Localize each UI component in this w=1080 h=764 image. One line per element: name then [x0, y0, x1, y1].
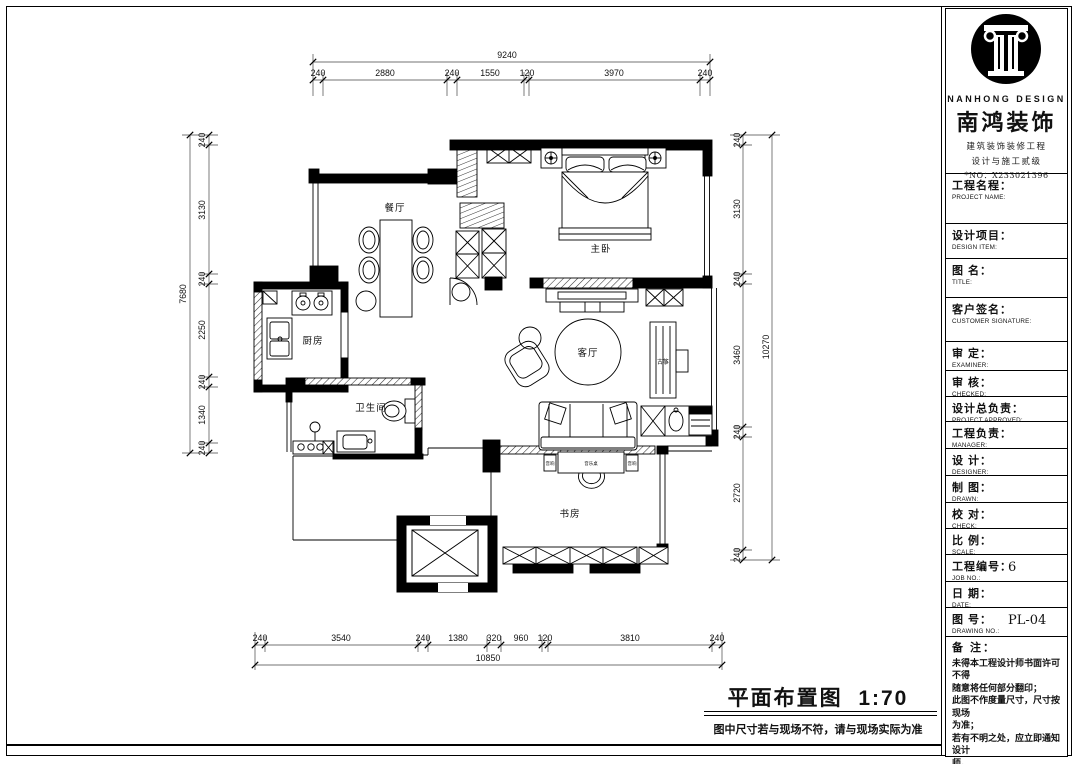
dim-right-seg: 2720	[732, 483, 742, 503]
entry-stool	[452, 283, 470, 301]
speaker-right-label: 音响	[628, 460, 637, 467]
notes-title: 备 注：	[952, 642, 1062, 655]
brand-line1: 建筑装饰装修工程	[946, 140, 1067, 152]
brand-name-en: NANHONG DESIGN	[946, 94, 1067, 104]
dim-bottom-seg: 240	[710, 633, 725, 643]
dim-left-seg: 240	[197, 441, 207, 456]
field-label-en: JOB NO.:	[952, 575, 1067, 582]
field-project-name: 工程名程： PROJECT NAME:	[946, 174, 1067, 224]
dim-bottom-seg: 320	[487, 633, 502, 643]
dim-bottom-seg: 960	[514, 633, 529, 643]
dim-top-seg: 120	[520, 68, 535, 78]
drawing-title-text: 平面布置图	[728, 687, 843, 710]
field-label-cn: 审 核：	[952, 374, 1067, 390]
dim-top-seg: 2880	[375, 68, 395, 78]
dim-left-seg: 1340	[197, 405, 207, 425]
brand-name-cn: 南鸿装饰	[946, 105, 1067, 137]
dim-bottom-seg: 3540	[331, 633, 351, 643]
room-label-bathroom: 卫生间	[355, 402, 387, 414]
drawing-scale: 1:70	[858, 687, 908, 710]
note-line: 为准；	[952, 719, 1062, 732]
field-label-en: TITLE:	[952, 279, 1067, 286]
field-project-approved: 设计总负责： PROJECT APPROVED:	[946, 397, 1067, 422]
room-living	[501, 289, 712, 450]
field-examiner: 审 定： EXAMINER:	[946, 342, 1067, 371]
field-label-en: MANAGER:	[952, 442, 1067, 449]
field-label-en: CUSTOMER SIGNATURE:	[952, 318, 1067, 325]
note-line: 此图不作度量尺寸，尺寸按现场	[952, 694, 1062, 719]
company-logo-icon	[946, 9, 1067, 87]
logo-area: NANHONG DESIGN 南鸿装饰 建筑装饰装修工程 设计与施工贰级 *NO…	[946, 9, 1067, 174]
notes-section: 备 注： 未得本工程设计师书面许可不得 随意将任何部分翻印； 此图不作度量尺寸，…	[946, 637, 1067, 764]
field-label-en: DESIGN ITEM:	[952, 244, 1067, 251]
note-line: 若有不明之处，应立即通知设计	[952, 732, 1062, 757]
dim-top-seg: 240	[311, 68, 326, 78]
field-label-cn: 设计总负责：	[952, 400, 1067, 416]
note-line: 师。	[952, 757, 1062, 764]
dim-right-seg: 3130	[732, 199, 742, 219]
dim-left-seg: 2250	[197, 320, 207, 340]
room-dining	[356, 220, 433, 317]
dim-bottom-seg: 120	[538, 633, 553, 643]
note-line: 未得本工程设计师书面许可不得	[952, 657, 1062, 682]
guzheng-label: 古筝	[657, 358, 669, 366]
floor-plan-drawing: 9240 240 2880 240 1550 120 3970 240 7680…	[0, 0, 941, 764]
dim-right-seg: 240	[732, 133, 742, 148]
dim-top-seg: 1550	[480, 68, 500, 78]
dim-top-total: 9240	[497, 50, 517, 60]
brand-line2: 设计与施工贰级	[946, 155, 1067, 167]
field-manager: 工程负责： MANAGER:	[946, 422, 1067, 449]
music-desk-label: 音乐桌	[584, 460, 598, 467]
dim-left-seg: 3130	[197, 200, 207, 220]
field-label-cn: 审 定：	[952, 345, 1067, 361]
room-label-kitchen: 厨房	[302, 335, 323, 347]
dim-right-seg: 240	[732, 425, 742, 440]
room-label-living: 客厅	[577, 347, 598, 359]
room-label-master-bedroom: 主卧	[590, 243, 611, 255]
dim-top-seg: 240	[698, 68, 713, 78]
field-label-cn: 工程名程：	[952, 177, 1067, 193]
field-drawing-no: 图 号： DRAWING NO.: PL-04	[946, 608, 1067, 637]
speaker-left-label: 音响	[546, 460, 555, 467]
title-underline	[704, 711, 937, 716]
dim-bottom-total: 10850	[476, 653, 501, 663]
dimension-labels-top: 9240 240 2880 240 1550 120 3970 240	[311, 50, 713, 78]
room-label-study: 书房	[559, 508, 580, 520]
dim-bottom-seg: 1380	[448, 633, 468, 643]
field-label-en: DRAWN:	[952, 496, 1067, 503]
dim-right-seg: 3460	[732, 345, 742, 365]
note-line: 随意将任何部分翻印；	[952, 682, 1062, 695]
blueprint-page: 9240 240 2880 240 1550 120 3970 240 7680…	[0, 0, 1080, 764]
dimension-labels-right: 10270 240 3130 240 3460 240 2720 240	[732, 133, 771, 563]
dimensions-top	[310, 54, 713, 96]
field-label-cn: 设 计：	[952, 452, 1067, 468]
dim-left-seg: 240	[197, 375, 207, 390]
drawing-title: 平面布置图 1:70	[698, 682, 938, 712]
field-customer-signature: 客户签名： CUSTOMER SIGNATURE:	[946, 298, 1067, 342]
title-block: NANHONG DESIGN 南鸿装饰 建筑装饰装修工程 设计与施工贰级 *NO…	[945, 8, 1068, 757]
field-label-cn: 比 例：	[952, 532, 1067, 548]
field-label-en: DRAWING NO.:	[952, 628, 1067, 635]
field-label-cn: 客户签名：	[952, 301, 1067, 317]
field-value: PL-04	[1008, 613, 1046, 628]
bottom-frame-line	[7, 744, 941, 746]
room-bathroom	[293, 399, 415, 454]
field-check: 校 对： CHECK:	[946, 503, 1067, 529]
field-design-item: 设计项目： DESIGN ITEM:	[946, 224, 1067, 259]
field-label-en: PROJECT NAME:	[952, 194, 1067, 201]
field-designer: 设 计： DESIGNER:	[946, 449, 1067, 476]
frame-divider	[941, 6, 942, 756]
dim-right-total: 10270	[761, 335, 771, 360]
dim-bottom-seg: 240	[253, 633, 268, 643]
field-label-cn: 工程负责：	[952, 425, 1067, 441]
room-label-dining: 餐厅	[384, 202, 405, 214]
bottom-disclaimer: 图中尺寸若与现场不符，请与现场实际为准	[698, 721, 938, 737]
field-label-cn: 制 图：	[952, 479, 1067, 495]
dim-left-total: 7680	[178, 284, 188, 304]
room-study	[503, 452, 668, 564]
dining-stool	[356, 291, 376, 311]
dimension-labels-bottom: 10850 240 3540 240 1380 320 960 120 3810…	[253, 633, 725, 663]
field-label-cn: 图 名：	[952, 262, 1067, 278]
elevator-shaft	[397, 516, 497, 592]
field-scale: 比 例： SCALE:	[946, 529, 1067, 555]
field-job-no: 工程编号： JOB NO.: 6	[946, 555, 1067, 582]
field-label-cn: 校 对：	[952, 506, 1067, 522]
field-value: 6	[1008, 560, 1016, 575]
dim-top-seg: 240	[445, 68, 460, 78]
room-kitchen	[263, 291, 332, 359]
field-label-en: EXAMINER:	[952, 362, 1067, 369]
dimension-labels-left: 7680 240 3130 240 2250 240 1340 240	[178, 133, 207, 456]
field-drawn: 制 图： DRAWN:	[946, 476, 1067, 503]
dim-left-seg: 240	[197, 272, 207, 287]
field-label-en: DESIGNER:	[952, 469, 1067, 476]
dim-bottom-seg: 3810	[620, 633, 640, 643]
dim-top-seg: 3970	[604, 68, 624, 78]
dim-right-seg: 240	[732, 272, 742, 287]
field-checked: 审 核： CHECKED:	[946, 371, 1067, 397]
dim-right-seg: 240	[732, 548, 742, 563]
field-date: 日 期： DATE:	[946, 582, 1067, 608]
dim-bottom-seg: 240	[416, 633, 431, 643]
field-title: 图 名： TITLE:	[946, 259, 1067, 298]
field-label-cn: 设计项目：	[952, 227, 1067, 243]
field-label-cn: 日 期：	[952, 585, 1067, 601]
dim-left-seg: 240	[197, 133, 207, 148]
